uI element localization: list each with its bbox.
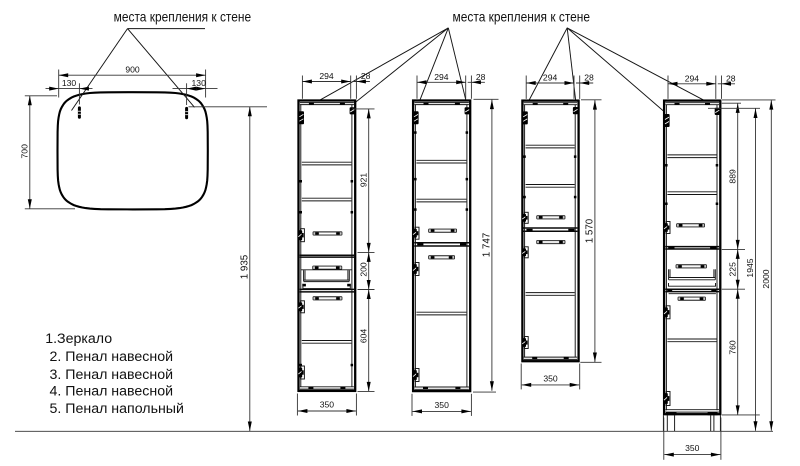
svg-text:1 570: 1 570	[585, 218, 596, 243]
svg-text:места крепления к стене: места крепления к стене	[114, 8, 252, 24]
svg-text:2000: 2000	[761, 269, 771, 288]
svg-text:889: 889	[727, 169, 737, 184]
svg-text:1 747: 1 747	[482, 233, 493, 258]
svg-text:350: 350	[320, 400, 335, 410]
svg-text:28: 28	[584, 73, 594, 83]
svg-text:1945: 1945	[745, 258, 755, 277]
svg-text:294: 294	[543, 73, 558, 83]
svg-text:28: 28	[726, 74, 736, 84]
svg-text:350: 350	[543, 374, 558, 384]
svg-text:604: 604	[358, 329, 368, 344]
svg-text:130: 130	[192, 78, 207, 88]
svg-text:921: 921	[358, 173, 368, 188]
svg-text:225: 225	[727, 262, 737, 277]
svg-text:1.Зеркало: 1.Зеркало	[45, 331, 112, 347]
svg-text:2. Пенал навесной: 2. Пенал навесной	[50, 349, 174, 365]
svg-text:4. Пенал навесной: 4. Пенал навесной	[50, 384, 174, 400]
svg-text:294: 294	[319, 71, 334, 81]
svg-text:28: 28	[476, 72, 486, 82]
svg-text:294: 294	[685, 74, 700, 84]
svg-text:места крепления к стене: места крепления к стене	[453, 8, 591, 24]
svg-text:200: 200	[358, 262, 368, 277]
svg-text:760: 760	[727, 340, 737, 355]
svg-text:28: 28	[361, 71, 371, 81]
svg-text:294: 294	[434, 72, 449, 82]
svg-text:1 935: 1 935	[240, 254, 251, 279]
svg-text:900: 900	[125, 64, 140, 74]
svg-text:350: 350	[435, 400, 450, 410]
svg-text:350: 350	[685, 443, 700, 453]
svg-text:5. Пенал напольный: 5. Пенал напольный	[50, 401, 184, 417]
svg-text:700: 700	[20, 144, 30, 159]
svg-text:3. Пенал навесной: 3. Пенал навесной	[50, 367, 174, 383]
svg-text:130: 130	[62, 78, 77, 88]
